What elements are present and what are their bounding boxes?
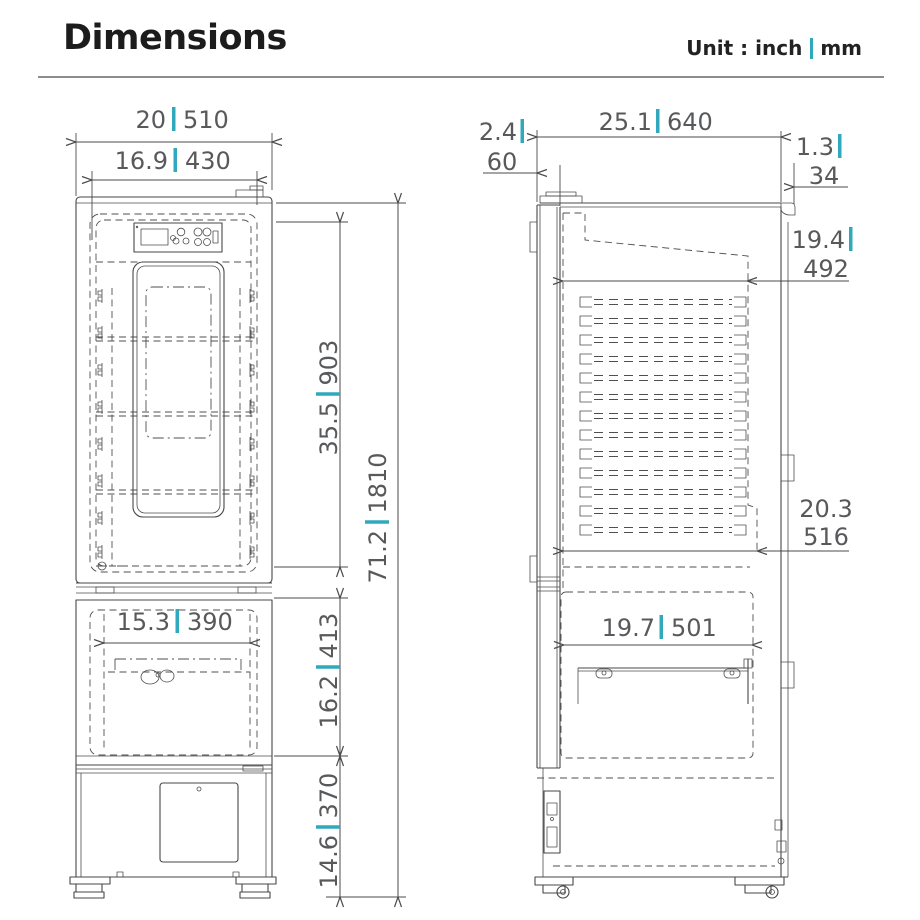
inch-mm-separator	[365, 520, 389, 524]
inch-mm-separator	[316, 825, 340, 829]
front-shelf-brackets	[98, 289, 254, 559]
dim-front-middle-chamber-height-inch: 16.2	[315, 675, 343, 728]
side-top-hinge	[540, 196, 582, 203]
caster-wheel	[766, 886, 778, 898]
dim-side-upper-interior-depth: 19.4 492	[563, 226, 853, 283]
inch-mm-separator	[172, 107, 176, 131]
dim-front-middle-chamber-width: 15.3 390	[104, 608, 250, 643]
dim-front-overall-height-inch: 71.2	[364, 530, 392, 583]
inch-mm-separator	[660, 615, 664, 639]
dim-side-middle-interior-depth-inch: 19.7	[602, 614, 655, 642]
dim-side-middle-interior-depth-mm: 501	[671, 614, 717, 642]
dim-side-overall-depth-inch: 25.1	[599, 108, 652, 136]
side-feet	[535, 877, 784, 898]
dim-front-middle-chamber-width-inch: 15.3	[117, 608, 170, 636]
control-button	[194, 228, 202, 236]
side-door	[530, 205, 560, 768]
dim-front-middle-chamber-height: 16.2 413	[274, 598, 348, 756]
dim-front-overall-width-mm: 510	[183, 106, 229, 134]
control-button	[173, 238, 179, 244]
dim-front-interior-width: 16.9 430	[92, 147, 257, 240]
side-back-panel	[775, 203, 795, 877]
dim-side-upper-interior-depth-inch: 19.4	[792, 226, 845, 254]
side-back-bracket	[781, 455, 794, 481]
front-door-window	[133, 262, 224, 517]
dim-front-overall-width-inch: 20	[135, 106, 166, 134]
inch-mm-separator	[316, 392, 340, 396]
front-middle-door	[76, 600, 272, 765]
dim-side-middle-interior-depth: 19.7 501	[564, 614, 752, 645]
dimensions-page: Dimensions Unit : inch mm	[0, 0, 920, 920]
inch-mm-separator	[656, 109, 660, 133]
dim-side-wall-clearance: 1.3 34	[794, 133, 848, 204]
inch-mm-separator	[849, 227, 853, 251]
dim-side-door-thickness: 2.4 60	[479, 118, 560, 206]
front-tray	[108, 659, 250, 684]
dim-side-door-thickness-inch: 2.4	[479, 118, 517, 146]
side-back-bracket	[781, 662, 794, 688]
inch-mm-separator	[176, 609, 180, 633]
dim-front-base-height-inch: 14.6	[315, 835, 343, 888]
dim-front-middle-chamber-height-mm: 413	[315, 613, 343, 659]
front-access-panel	[160, 783, 238, 862]
control-button	[204, 239, 211, 246]
dim-front-base-height-mm: 370	[315, 773, 343, 819]
dim-side-lower-interior-depth: 20.3 516	[563, 495, 853, 551]
dim-front-upper-chamber-height-inch: 35.5	[315, 402, 343, 455]
front-door-seal-inner	[96, 220, 251, 566]
front-base	[76, 765, 272, 877]
dim-front-middle-chamber-width-mm: 390	[187, 608, 233, 636]
dim-side-wall-clearance-mm: 34	[809, 162, 840, 190]
side-door-hinge-middle	[530, 556, 537, 582]
control-button	[203, 228, 211, 236]
front-top-hinge	[236, 190, 263, 197]
front-divider	[76, 583, 272, 600]
dim-side-wall-clearance-inch: 1.3	[796, 133, 834, 161]
side-cabinet-top	[540, 192, 781, 207]
front-view: 20 510 16.9 430 35.5 903	[70, 106, 406, 898]
control-button	[195, 239, 202, 246]
dim-front-upper-chamber-height: 35.5 903	[274, 222, 348, 567]
dim-side-upper-interior-depth-mm: 492	[803, 255, 849, 283]
side-door-hinge-top	[530, 222, 537, 252]
side-middle-compartment	[561, 592, 753, 758]
inch-mm-separator	[316, 665, 340, 669]
control-button	[177, 228, 185, 236]
front-door-seal-outer	[90, 214, 257, 572]
dim-side-lower-interior-depth-mm: 516	[803, 523, 849, 551]
inch-mm-separator	[521, 119, 525, 143]
control-button	[183, 238, 189, 244]
caster-wheel	[557, 886, 569, 898]
side-wall-spacer	[781, 203, 795, 215]
side-base-switch-box	[544, 791, 560, 853]
dim-front-interior-width-inch: 16.9	[115, 147, 168, 175]
dim-front-overall-height-mm: 1810	[364, 452, 392, 513]
side-upper-interior	[563, 213, 757, 590]
side-wall-slots	[580, 297, 746, 535]
inch-mm-separator	[174, 148, 178, 172]
dimensions-diagram: 20 510 16.9 430 35.5 903	[0, 0, 920, 920]
control-display	[141, 229, 168, 245]
side-view: 2.4 60 25.1 640 1.3 34	[479, 108, 853, 898]
side-base	[537, 768, 788, 877]
dim-side-door-thickness-mm: 60	[487, 148, 518, 176]
dim-side-overall-depth: 25.1 640	[537, 108, 781, 202]
dim-side-overall-depth-mm: 640	[667, 108, 713, 136]
dim-front-base-height: 14.6 370	[315, 756, 343, 897]
dim-front-upper-chamber-height-mm: 903	[315, 340, 343, 386]
front-feet	[70, 877, 276, 898]
dim-side-lower-interior-depth-inch: 20.3	[799, 495, 852, 523]
dim-front-interior-width-mm: 430	[185, 147, 231, 175]
front-control-panel	[134, 223, 222, 252]
front-cabinet-upper-door	[76, 186, 272, 583]
inch-mm-separator	[838, 134, 842, 158]
front-shelves	[96, 288, 256, 566]
